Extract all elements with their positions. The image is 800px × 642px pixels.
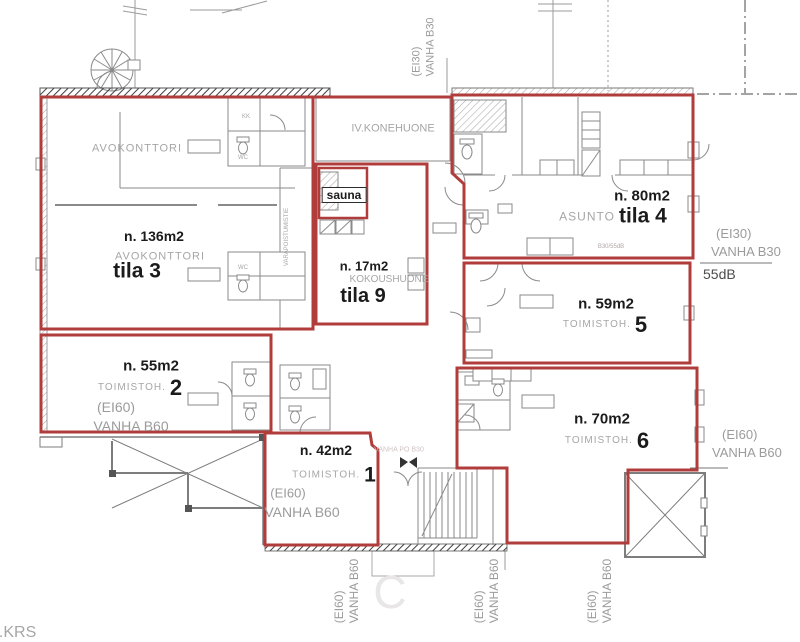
wc-label-mid: WC [238,265,248,271]
escape-route-label: VARAPOISTUMISTIE [284,208,290,266]
floorplan-2krs: AVOKONTTORI n. 136m2 AVOKONTTORI tila 3 … [0,0,800,642]
dimension-lines [123,0,800,576]
room1-name-row: TOIMISTOH. 1 [292,465,376,486]
bottom-note-2-line1: (EI60) [472,559,487,623]
room5-type: TOIMISTOH. [563,320,631,330]
room6-type: TOIMISTOH. [565,436,633,446]
floor-label: 2.KRS [0,625,36,641]
room1-type: TOIMISTOH. [292,470,360,480]
room4-name: tila 4 [619,206,667,227]
bottom-note-2-line2: VANHA B60 [487,559,502,623]
bottom-note-2: (EI60) VANHA B60 [472,559,502,623]
top-vertical-note: (EI30) VANHA B30 [410,17,438,76]
room2-rating2: VANHA B60 [93,419,168,433]
room2-name-row: TOIMISTOH. 2 [98,377,182,399]
room4-type: ASUNTO [559,210,615,222]
room1-rating2: VANHA B60 [264,505,339,519]
right-lower-note-line1: (EI60) [722,428,757,441]
zone-label-avokonttori-upper: AVOKONTTORI [92,144,182,155]
room4-name-row: ASUNTO tila 4 [559,206,667,227]
room5-area: n. 59m2 [578,297,634,312]
room9-area: n. 17m2 [340,260,388,273]
bottom-note-3-line1: (EI60) [585,559,600,623]
wc-label-top: WC [238,155,248,161]
bottom-note-1: (EI60) VANHA B60 [332,559,362,623]
watermark: C [373,569,406,615]
room3-name: tila 3 [113,261,161,282]
room2-type: TOIMISTOH. [98,383,166,393]
room9-name: tila 9 [340,286,386,306]
bottom-note-3-line2: VANHA B60 [600,559,615,623]
room9-type: KOKOUSHUONE [350,275,429,285]
top-vertical-note-line2: VANHA B30 [424,17,438,76]
bottom-note-3: (EI60) VANHA B60 [585,559,615,623]
kk-label: KK [242,114,250,120]
right-upper-note-line2: VANHA B30 [711,245,781,258]
room2-rating1: (EI60) [97,400,135,414]
plan-linework [0,0,800,642]
room6-name-row: TOIMISTOH. 6 [565,430,649,452]
iv-room-label: IV.KONEHUONE [351,124,434,135]
room1-rating1: (EI60) [270,487,305,500]
room4-area: n. 80m2 [614,189,670,204]
db-note: 55dB [703,267,736,281]
vanha-po-note: VANHA PO B30 [374,447,424,454]
room6-area: n. 70m2 [574,412,630,427]
room2-number: 2 [170,377,182,399]
spiral-stair [91,49,140,91]
sauna-label: sauna [322,187,367,203]
room1-area: n. 42m2 [300,443,352,457]
bottom-note-1-line2: VANHA B60 [347,559,362,623]
bottom-note-1-line1: (EI60) [332,559,347,623]
stairwell [394,457,493,545]
top-vertical-note-line1: (EI30) [410,17,424,76]
room4-note: B30/55dB [598,244,624,250]
room6-number: 6 [637,430,649,452]
room5-name-row: TOIMISTOH. 5 [563,314,647,336]
room5-number: 5 [635,314,647,336]
room1-number: 1 [364,465,376,486]
room3-area: n. 136m2 [124,229,184,243]
room2-area: n. 55m2 [123,359,179,374]
right-upper-note-line1: (EI30) [716,227,751,240]
right-lower-note-line2: VANHA B60 [712,446,782,459]
